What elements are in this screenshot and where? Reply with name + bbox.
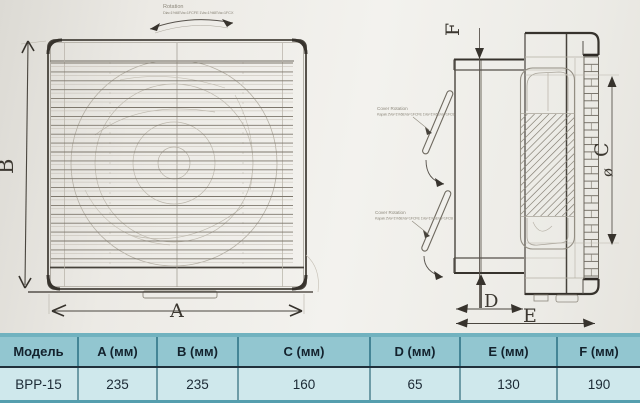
side-view: Cover Rotation Kapak 2Va=1%6EVa=1FCFE 1V…	[375, 23, 640, 328]
col-header-a: A (мм)	[78, 337, 157, 367]
louver-slats	[51, 63, 293, 262]
dim-c-label: C	[591, 142, 613, 157]
col-header-model: Модель	[0, 337, 78, 367]
col-header-f: F (мм)	[557, 337, 640, 367]
dimension-e: E	[456, 305, 595, 328]
rotation-arrow-icon	[150, 20, 233, 29]
dim-f-label: F	[442, 23, 464, 36]
blade-swing-arrow-icon	[435, 178, 444, 187]
cell-b-value: 235	[157, 367, 238, 400]
cell-d-value: 65	[370, 367, 460, 400]
table-header-row: Модель A (мм) B (мм) C (мм) D (мм) E (мм…	[0, 337, 640, 367]
table-row: BPP-15 235 235 160 65 130 190	[0, 367, 640, 400]
dim-e-label: E	[523, 305, 537, 327]
blade-swing-arrow-icon	[434, 271, 443, 280]
fan-impeller-ghost	[71, 60, 277, 266]
dimension-f: F	[442, 23, 486, 308]
cell-c-value: 160	[238, 367, 370, 400]
col-header-d: D (мм)	[370, 337, 460, 367]
dim-a-label: A	[169, 300, 184, 322]
cover-rotation-title: Cover Rotation	[375, 210, 406, 215]
col-header-b: B (мм)	[157, 337, 238, 367]
cover-rotation-detail: Kapak 2Va=1%6EVa=1FCFE 1Va=1%6EVa=1FCB	[377, 113, 455, 117]
dim-b-label: B	[0, 159, 18, 174]
front-view: B A Rotation Dia=1%6EVa=1FCFE 1Va=1%6EVa…	[0, 4, 319, 322]
cell-a-value: 235	[78, 367, 157, 400]
cell-model: BPP-15	[0, 367, 78, 400]
cell-f-value: 190	[557, 367, 640, 400]
cover-rotation-detail: Kapak 2Va=1%6EVa=1FCFE 1Va=1%6EVa=1FCB	[375, 217, 453, 221]
open-louver-blade-1	[422, 90, 454, 155]
dimension-b: B	[0, 41, 46, 288]
rotation-detail: Dia=1%6EVa=1FCFE 1Va=1%6EVa=1FCX	[163, 10, 234, 15]
dimension-d: D	[456, 291, 523, 313]
cover-rotation-title: Cover Rotation	[377, 106, 408, 111]
spec-table: Модель A (мм) B (мм) C (мм) D (мм) E (мм…	[0, 333, 640, 403]
col-header-e: E (мм)	[460, 337, 557, 367]
rotation-annotation: Rotation Dia=1%6EVa=1FCFE 1Va=1%6EVa=1FC…	[150, 4, 234, 33]
diameter-symbol: ø	[599, 168, 617, 177]
open-louver-blade-2	[421, 190, 452, 252]
dim-d-label: D	[484, 291, 498, 312]
technical-drawing-sheet: B A Rotation Dia=1%6EVa=1FCFE 1Va=1%6EVa…	[0, 0, 640, 337]
col-header-c: C (мм)	[238, 337, 370, 367]
cell-e-value: 130	[460, 367, 557, 400]
